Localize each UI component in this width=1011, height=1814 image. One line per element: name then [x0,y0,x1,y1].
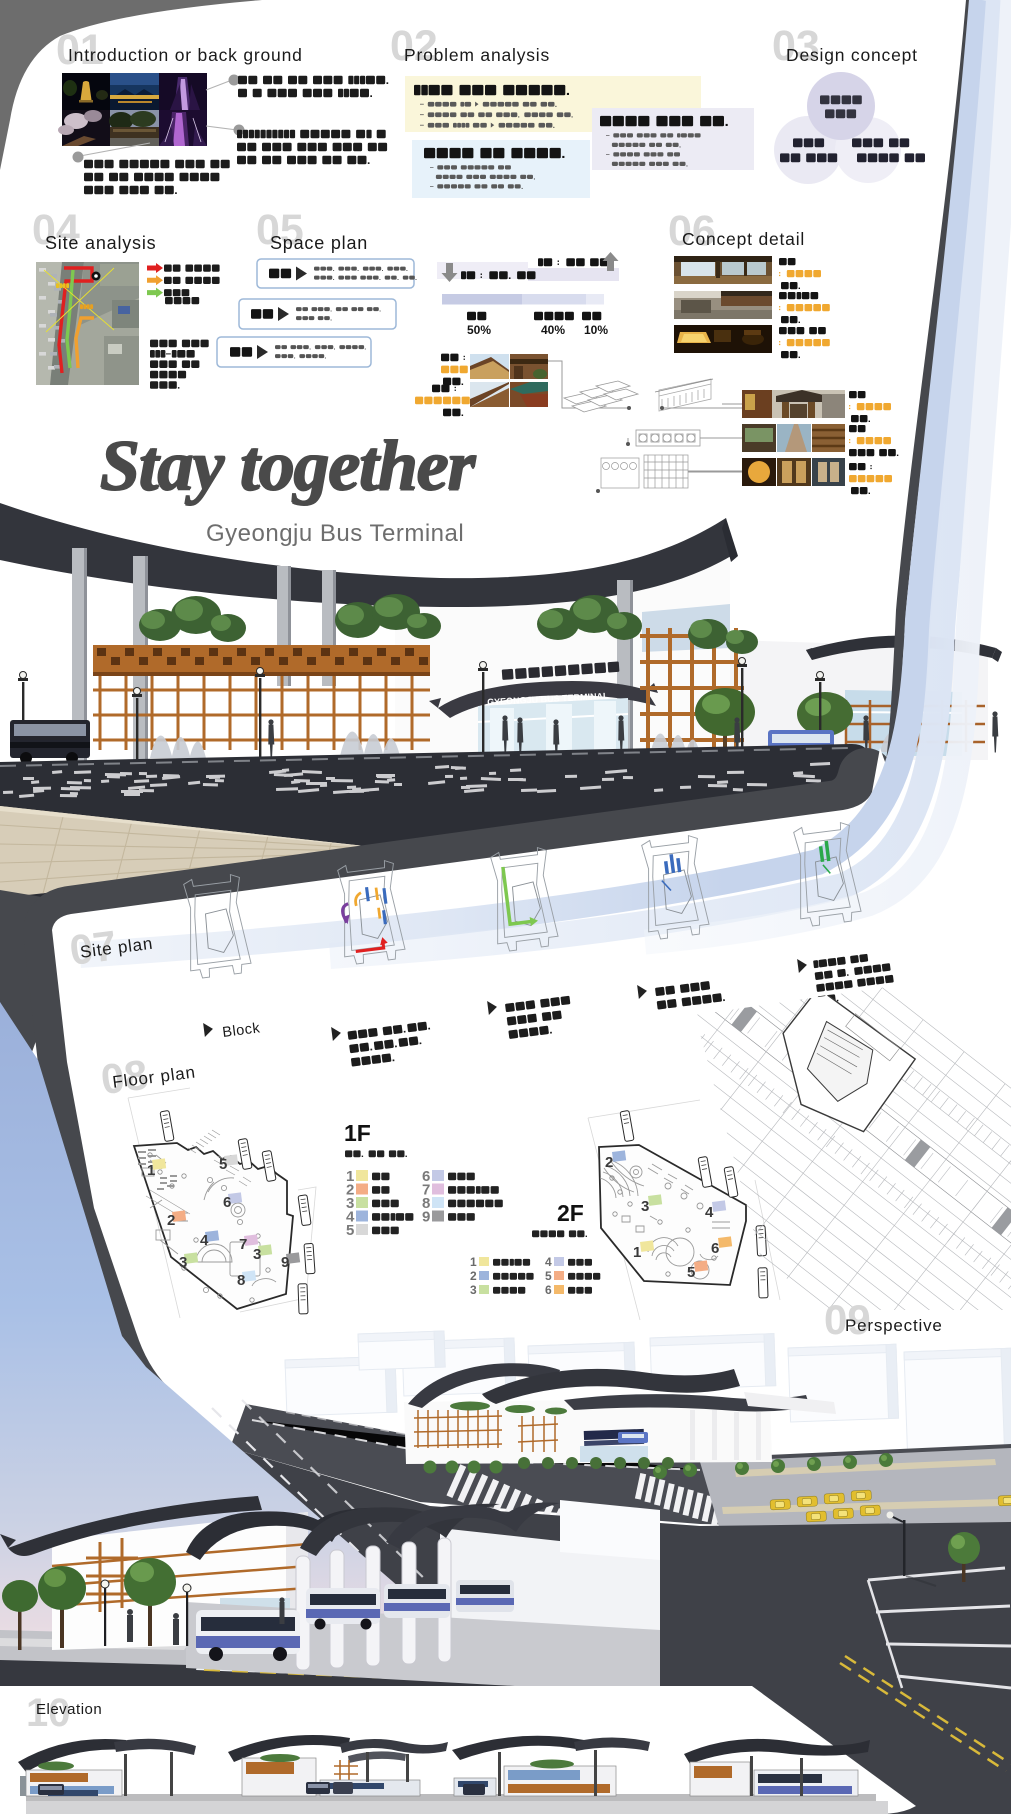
svg-text:Elevation: Elevation [36,1701,102,1718]
svg-text:1F: 1F [344,1120,371,1146]
svg-text:5: 5 [219,1156,227,1173]
svg-text:2: 2 [470,1269,477,1283]
svg-text:Space plan: Space plan [270,233,368,253]
svg-text:Design concept: Design concept [786,45,918,65]
svg-text:5: 5 [346,1222,354,1239]
svg-text:1: 1 [470,1255,477,1269]
svg-text:10%: 10% [584,323,608,337]
svg-text:40%: 40% [541,323,565,337]
svg-text:3: 3 [641,1198,649,1215]
svg-text:Introduction or back ground: Introduction or back ground [68,45,303,65]
svg-text:1: 1 [633,1244,641,1261]
svg-text:8: 8 [237,1272,245,1289]
svg-text:6: 6 [711,1240,719,1257]
svg-text:4: 4 [545,1255,552,1269]
svg-text:6: 6 [223,1194,231,1211]
svg-text:4: 4 [705,1204,714,1221]
svg-text:5: 5 [545,1269,552,1283]
svg-text:9: 9 [281,1254,289,1271]
svg-text:50%: 50% [467,323,491,337]
svg-text:Gyeongju Bus Terminal: Gyeongju Bus Terminal [206,520,464,547]
svg-text:Problem analysis: Problem analysis [404,45,550,65]
svg-text:Stay together: Stay together [100,427,477,507]
svg-text:Concept detail: Concept detail [682,229,805,249]
svg-text:2: 2 [167,1212,175,1229]
svg-text:1: 1 [147,1162,155,1179]
svg-text:Site analysis: Site analysis [45,233,156,253]
svg-text:7: 7 [239,1236,247,1253]
svg-text:9: 9 [422,1209,430,1226]
svg-text:2: 2 [605,1154,613,1171]
svg-text:6: 6 [545,1283,552,1297]
svg-text:3: 3 [470,1283,477,1297]
svg-text:2F: 2F [557,1200,584,1226]
svg-text:Perspective: Perspective [845,1316,943,1335]
svg-text:3: 3 [253,1246,261,1263]
svg-text:3: 3 [179,1254,187,1271]
svg-text:5: 5 [687,1264,695,1281]
svg-text:4: 4 [200,1232,209,1249]
